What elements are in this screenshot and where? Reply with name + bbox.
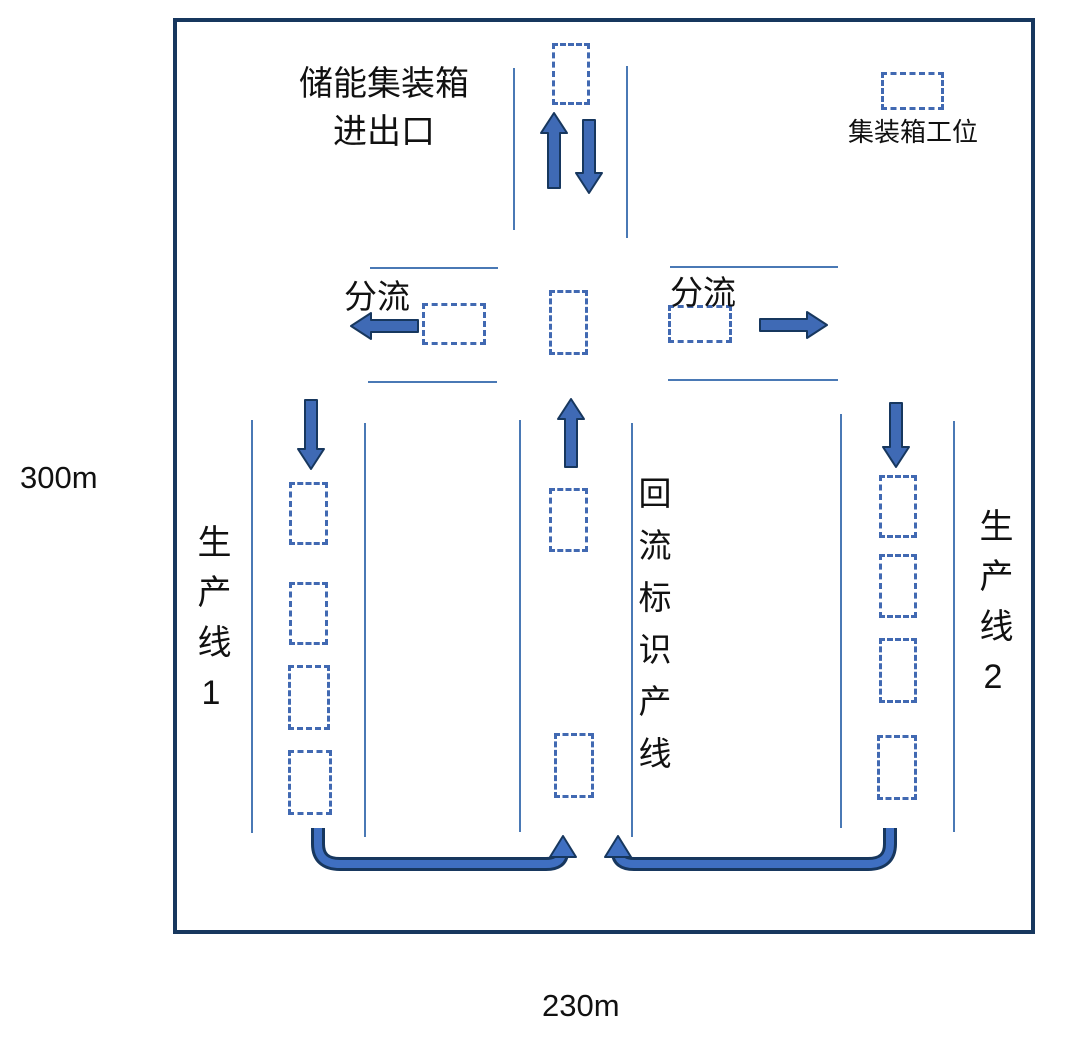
split-left-label: 分流 bbox=[344, 270, 410, 318]
return-line-label: 回流标识产线 bbox=[636, 476, 669, 788]
line2-container-slot bbox=[879, 475, 917, 538]
factory-layout-diagram: 储能集装箱 进出口 集装箱工位 分流 分流 生产线1 回流标识产线 生产线2 3… bbox=[0, 0, 1066, 1042]
entry-container-slot bbox=[552, 43, 590, 105]
split-right-label: 分流 bbox=[670, 266, 736, 314]
width-dimension-label: 230m bbox=[542, 988, 620, 1024]
line1-container-slot bbox=[288, 750, 332, 815]
line2-container-slot bbox=[879, 638, 917, 703]
line1-container-slot bbox=[288, 665, 330, 730]
crossing-container-slot bbox=[549, 290, 588, 355]
split-left-container-slot bbox=[422, 303, 486, 345]
production-line-2-label: 生产线2 bbox=[976, 508, 1010, 712]
legend-container-slot-icon bbox=[881, 72, 944, 110]
line2-container-slot bbox=[877, 735, 917, 800]
line2-container-slot bbox=[879, 554, 917, 618]
entrance-label-line1: 储能集装箱 bbox=[274, 56, 494, 105]
return-line-container-slot bbox=[554, 733, 594, 798]
line1-container-slot bbox=[289, 482, 328, 545]
production-line-1-label: 生产线1 bbox=[194, 524, 228, 728]
height-dimension-label: 300m bbox=[20, 460, 98, 496]
line1-container-slot bbox=[289, 582, 328, 645]
return-line-container-slot bbox=[549, 488, 588, 552]
legend-label: 集装箱工位 bbox=[843, 112, 983, 149]
entrance-label-line2: 进出口 bbox=[274, 104, 494, 153]
